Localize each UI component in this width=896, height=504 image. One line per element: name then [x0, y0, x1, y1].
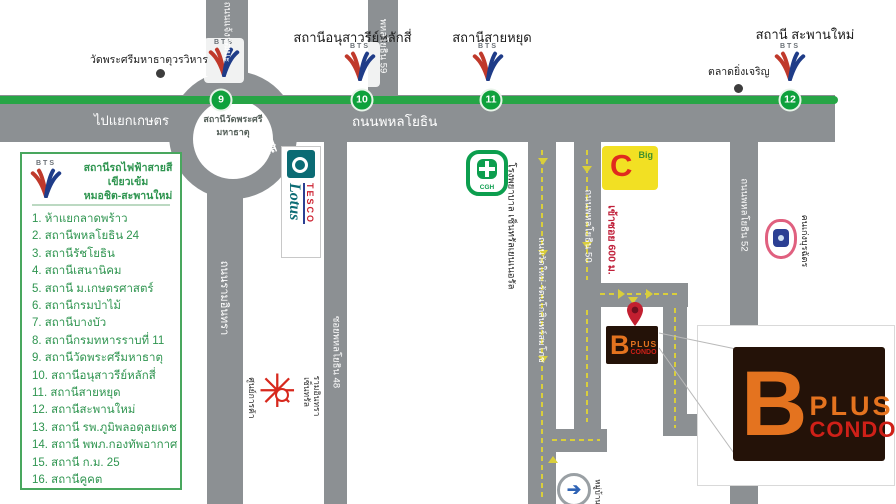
bts-green-line — [0, 96, 838, 104]
market-label: ตลาดยิ่งเจริญ — [708, 63, 770, 80]
bts-logo: BTS — [340, 42, 380, 87]
to-kaset-label: ไปแยกเกษตร — [94, 110, 169, 131]
cgh-hospital-icon: CGH — [466, 150, 508, 196]
route-arrow-icon — [618, 289, 625, 299]
station-10-label: สถานีอนุสาวรีย์หลักสี่ — [270, 27, 435, 48]
mall-left-label: ศูนย์การค้า — [245, 377, 259, 418]
legend-item: 12. สถานีสะพานใหม่ — [32, 402, 180, 419]
road-ramintra-label: ถนนรามอินทรา — [216, 261, 234, 336]
phahonyothin-label: ถนนพหลโยธิน — [352, 110, 437, 132]
legend-divider — [32, 204, 170, 206]
route-arrow-icon — [646, 289, 653, 299]
legend-item: 3. สถานีรัชโยธิน — [32, 246, 180, 263]
lotus-wordmark: Lotus — [287, 183, 304, 224]
village-arrow-icon: ➔ — [557, 473, 591, 504]
school-emblem-icon — [765, 219, 797, 259]
mall-name-line2: รามอินทรา — [310, 376, 324, 417]
legend-item: 15. สถานี ก.ม. 25 — [32, 455, 180, 472]
soi-entrance-note: เข้าซอย 600 ม. — [604, 205, 621, 274]
bts-logo: BTS — [770, 42, 810, 87]
legend-item: 10. สถานีอนุสาวรีย์หลักสี่ — [32, 368, 180, 385]
route-dash — [552, 439, 600, 441]
legend-item: 5. สถานี ม.เกษตรศาสตร์ — [32, 281, 180, 298]
legend-item: 8. สถานีกรมทหารราบที่ 11 — [32, 333, 180, 350]
bts-logo-icon — [773, 51, 807, 81]
condo-plus: PLUS — [809, 393, 896, 419]
temple-dot — [156, 69, 165, 78]
roundabout-station-name: สถานีวัดพระศรี มหาธาตุ — [193, 113, 273, 139]
road-chaengwatthana-label: ถนนแจ้งวัฒนะ — [220, 2, 235, 63]
tesco-lotus-sign: TESCO Lotus — [281, 146, 321, 258]
legend-item: 1. ห้าแยกลาดพร้าว — [32, 211, 180, 228]
route-dash — [674, 308, 676, 428]
road-ramintra — [207, 184, 243, 504]
station-badge-9: 9 — [210, 89, 233, 112]
station-legend: BTS สถานีรถไฟฟ้าสายสีเขียวเข้ม หมอชิต-สะ… — [20, 152, 182, 490]
bts-logo-icon — [343, 51, 377, 81]
legend-item: 2. สถานีพหลโยธิน 24 — [32, 228, 180, 245]
lotus-icon — [287, 150, 315, 178]
route-dash — [600, 293, 680, 295]
station-badge-10: 10 — [351, 89, 374, 112]
bts-logo-icon — [471, 51, 505, 81]
location-pin-icon — [627, 302, 643, 331]
road-soi52-label: ถนนพหลโยธิน 52 — [737, 178, 752, 251]
bigc-letter: C — [610, 148, 632, 184]
route-dash — [586, 310, 588, 422]
condo-plus: PLUS — [631, 340, 658, 349]
bigc-logo: C Big — [602, 146, 658, 190]
cgh-wordmark: CGH — [470, 184, 504, 191]
station-12-label: สถานี สะพานใหม่ — [750, 24, 860, 45]
mall-flower-core — [275, 388, 289, 402]
bts-wordmark: BTS — [26, 160, 66, 168]
route-arrow-icon — [538, 158, 548, 165]
legend-item: 16. สถานีคูคต — [32, 472, 180, 489]
condo-b: B — [610, 332, 630, 358]
legend-item: 13. สถานี รพ.ภูมิพลอดุลยเดช — [32, 420, 180, 437]
legend-item: 9. สถานีวัดพระศรีมหาธาตุ — [32, 350, 180, 367]
legend-item: 6. สถานีกรมป่าไม้ — [32, 298, 180, 315]
map: 9 10 11 12 BTS BTS BTS BTS — [0, 0, 896, 504]
condo-condo: CONDO — [631, 349, 658, 357]
school-label: คนเก่งบุรฉัตร — [798, 215, 812, 267]
legend-item: 7. สถานีบางบัว — [32, 315, 180, 332]
station-11-label: สถานีสายหยุด — [447, 27, 537, 48]
road-soi50-label: ถนนพหลโยธิน 50 — [581, 189, 596, 262]
station-badge-12: 12 — [779, 89, 802, 112]
legend-item: 14. สถานี พพภ.กองทัพอากาศ — [32, 437, 180, 454]
temple-label: วัดพระศรีมหาธาตุวรวิหาร — [90, 51, 208, 68]
bts-logo-icon — [29, 168, 63, 198]
legend-items: 1. ห้าแยกลาดพร้าว2. สถานีพหลโยธิน 243. ส… — [32, 211, 180, 490]
station-badge-11: 11 — [480, 89, 503, 112]
legend-item: 11. สถานีสายหยุด — [32, 385, 180, 402]
road-soi48-label: ซอยพหลโยธิน 48 — [329, 316, 344, 388]
condo-condo: CONDO — [809, 419, 896, 441]
road-watmai-label: ถนนวัดใหม่-รัตนโกสินทร์สมโภช — [535, 237, 549, 363]
bts-logo: BTS — [468, 42, 508, 87]
bplus-condo-logo-small: B PLUS CONDO — [606, 326, 658, 364]
bplus-condo-logo-large: B PLUS CONDO — [733, 347, 885, 461]
route-arrow-icon — [582, 166, 592, 173]
route-arrow-icon — [548, 456, 558, 463]
road-soi59-label: พหลโยธิน 59 — [376, 19, 391, 74]
village-label: หมู่บ้าน — [592, 479, 605, 504]
bts-logo: BTS — [26, 159, 66, 204]
market-dot — [734, 84, 743, 93]
condo-b: B — [741, 364, 807, 444]
cross-icon — [477, 159, 497, 179]
legend-title: สถานีรถไฟฟ้าสายสีเขียวเข้ม หมอชิต-สะพานใ… — [78, 161, 178, 203]
tesco-wordmark: TESCO — [304, 183, 316, 224]
bigc-small-label: Big — [639, 150, 654, 160]
legend-item: 4. สถานีเสนานิคม — [32, 263, 180, 280]
